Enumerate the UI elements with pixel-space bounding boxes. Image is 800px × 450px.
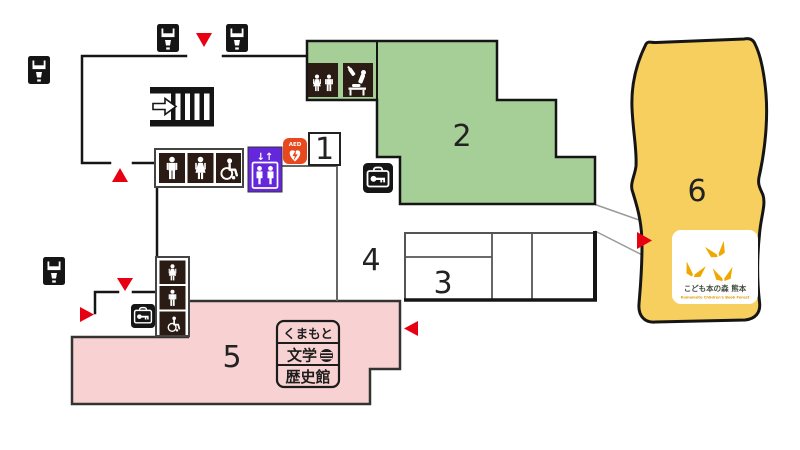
inner-walls: [282, 166, 337, 300]
family-toilet-icon: [308, 63, 338, 97]
cloakroom-key-icon: [131, 304, 155, 328]
vending-machine-icon: [157, 24, 179, 52]
vending-machine-icon: [226, 24, 248, 52]
elevator-arrows: ↓↑: [257, 152, 274, 163]
area-2-label: 2: [452, 119, 471, 154]
baby-room-icon: [343, 63, 373, 97]
area-4-label: 4: [361, 243, 380, 278]
toilet-block-horizontal: [155, 149, 243, 187]
toilet-block-vertical: [156, 257, 189, 336]
vending-machine-icon: [28, 56, 50, 84]
area-3-label: 3: [433, 266, 452, 301]
aed-icon: AED: [283, 138, 307, 164]
stamp-line2: 文学: [287, 347, 317, 365]
entrance-marker-down: [196, 33, 212, 47]
floor-map: ↓↑ AED 1 こども本の森 熊本 Ku: [0, 0, 800, 450]
stamp-line3: 歴史館: [285, 368, 330, 386]
elevator-icon: ↓↑: [248, 147, 282, 192]
entrance-marker-right: [80, 307, 94, 322]
stamp-line1: くまもと: [283, 326, 333, 341]
area-1-label: 1: [315, 132, 334, 167]
book-forest-name-jp: こども本の森 熊本: [684, 283, 747, 293]
museum-stamp-logo: くまもと 文学 歴史館: [277, 321, 339, 387]
stairs-icon: [150, 87, 214, 127]
aed-label: AED: [289, 142, 302, 148]
area-6-label: 6: [687, 174, 706, 209]
entrance-marker-down2: [117, 278, 133, 291]
vending-machine-icon: [43, 257, 65, 285]
book-forest-name-en: Kumamoto Children's Book Forest: [681, 296, 750, 300]
entrance-marker-up: [112, 168, 128, 182]
entrance-marker-left: [404, 321, 418, 336]
area-5-label: 5: [222, 340, 241, 375]
area-1-marker: 1: [309, 132, 340, 167]
cloakroom-key-icon: [363, 163, 393, 193]
book-forest-logo: こども本の森 熊本 Kumamoto Children's Book Fores…: [672, 230, 758, 304]
